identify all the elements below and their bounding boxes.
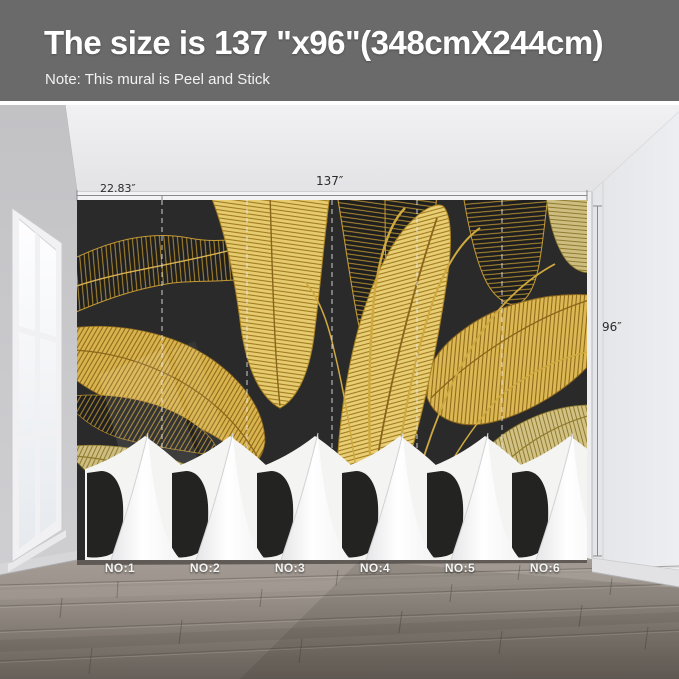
total-width-dimension: 137″ <box>316 174 343 188</box>
wood-floor <box>0 556 679 679</box>
panel-width-dimension: 22.83″ <box>100 182 136 195</box>
right-wall <box>592 112 679 583</box>
size-title: The size is 137 "x96"(348cmX244cm) <box>44 24 603 62</box>
window <box>8 208 66 572</box>
panel-label-5: NO:5 <box>445 561 475 575</box>
size-banner: The size is 137 "x96"(348cmX244cm) Note:… <box>0 0 679 101</box>
panel-label-2: NO:2 <box>190 561 220 575</box>
wallpaper-mural <box>77 200 587 560</box>
height-dimension: 96″ <box>602 320 622 334</box>
panel-label-4: NO:4 <box>360 561 390 575</box>
back-wall-right-margin <box>587 192 592 565</box>
product-image: The size is 137 "x96"(348cmX244cm) Note:… <box>0 0 679 679</box>
panel-label-3: NO:3 <box>275 561 305 575</box>
panel-label-6: NO:6 <box>530 561 560 575</box>
panel-label-1: NO:1 <box>105 561 135 575</box>
peel-stick-note: Note: This mural is Peel and Stick <box>45 71 270 88</box>
